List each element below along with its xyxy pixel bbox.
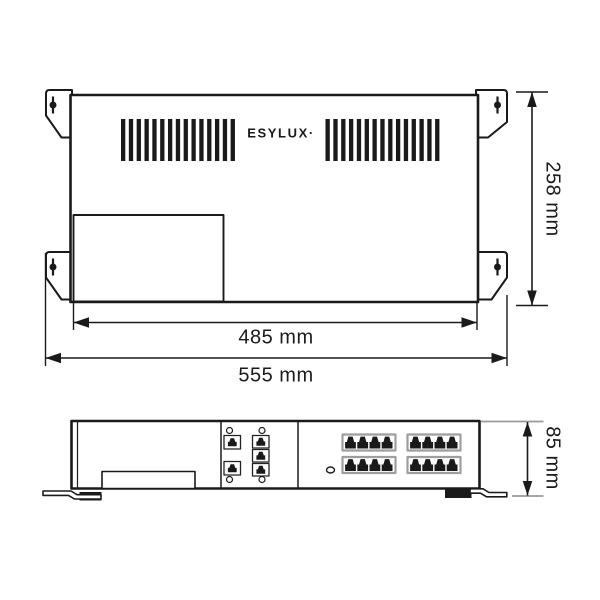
arrow-up-icon [527, 92, 537, 107]
foot-bracket [470, 489, 507, 497]
dim-label-height: 85 mm [541, 426, 564, 490]
arrow-up-icon [523, 422, 533, 437]
led-indicator [327, 467, 335, 473]
vent-slot [215, 119, 219, 161]
vent-slot [404, 119, 408, 161]
vent-slot [199, 119, 203, 161]
vent-slot [427, 119, 431, 161]
vent-slot [176, 119, 180, 161]
vent-slot [184, 119, 188, 161]
screw-hole-icon [227, 477, 233, 483]
top-view [46, 90, 507, 302]
vent-slot [412, 119, 416, 161]
vent-slot [357, 119, 361, 161]
vent-slot [223, 119, 227, 161]
bracket-top-left [46, 90, 72, 138]
foot-right [445, 489, 507, 498]
arrow-down-icon [523, 481, 533, 496]
dim-label-body-width: 485 mm [238, 327, 313, 350]
vent-slot [396, 119, 400, 161]
vent-slot [388, 119, 392, 161]
vent-slot [144, 119, 148, 161]
bracket-bottom-right [476, 252, 507, 300]
vent-slot [160, 119, 164, 161]
vent-slot [435, 119, 439, 161]
vent-slot [365, 119, 369, 161]
vent-slot [231, 119, 235, 161]
arrow-right-icon [492, 353, 508, 363]
vent-slot [333, 119, 337, 161]
vent-slot [419, 119, 423, 161]
front-view [43, 421, 507, 501]
brand-logo: ESYLUX· [247, 126, 315, 141]
screw-hole-icon [259, 428, 265, 434]
vent-slot [207, 119, 211, 161]
vent-slot [326, 119, 330, 161]
bracket-top-right [476, 90, 507, 138]
screw-hole-icon [227, 428, 233, 434]
vent-slot [349, 119, 353, 161]
vent-slot [152, 119, 156, 161]
dim-label-overall-width: 555 mm [238, 365, 313, 388]
screw-hole-icon [259, 477, 265, 483]
display-window [102, 472, 195, 489]
vent-slot [129, 119, 133, 161]
arrow-left-icon [74, 317, 90, 327]
arrow-down-icon [527, 291, 537, 306]
vent-slot [372, 119, 376, 161]
inner-panel [74, 215, 224, 302]
technical-drawing-page: ESYLUX· 485 mm 555 mm 258 mm 85 mm [0, 0, 600, 600]
vent-slot [191, 119, 195, 161]
vent-slot [168, 119, 172, 161]
vent-slot [121, 119, 125, 161]
dimension-height-85 [481, 422, 544, 497]
vent-slot [137, 119, 141, 161]
vent-slot [341, 119, 345, 161]
vent-slot [380, 119, 384, 161]
diagram-canvas [0, 0, 600, 600]
arrow-left-icon [46, 353, 62, 363]
arrow-right-icon [462, 317, 478, 327]
foot-pad [445, 489, 472, 498]
foot-left [43, 491, 102, 501]
dim-label-depth: 258 mm [541, 161, 564, 236]
bracket-bottom-left [46, 252, 72, 300]
